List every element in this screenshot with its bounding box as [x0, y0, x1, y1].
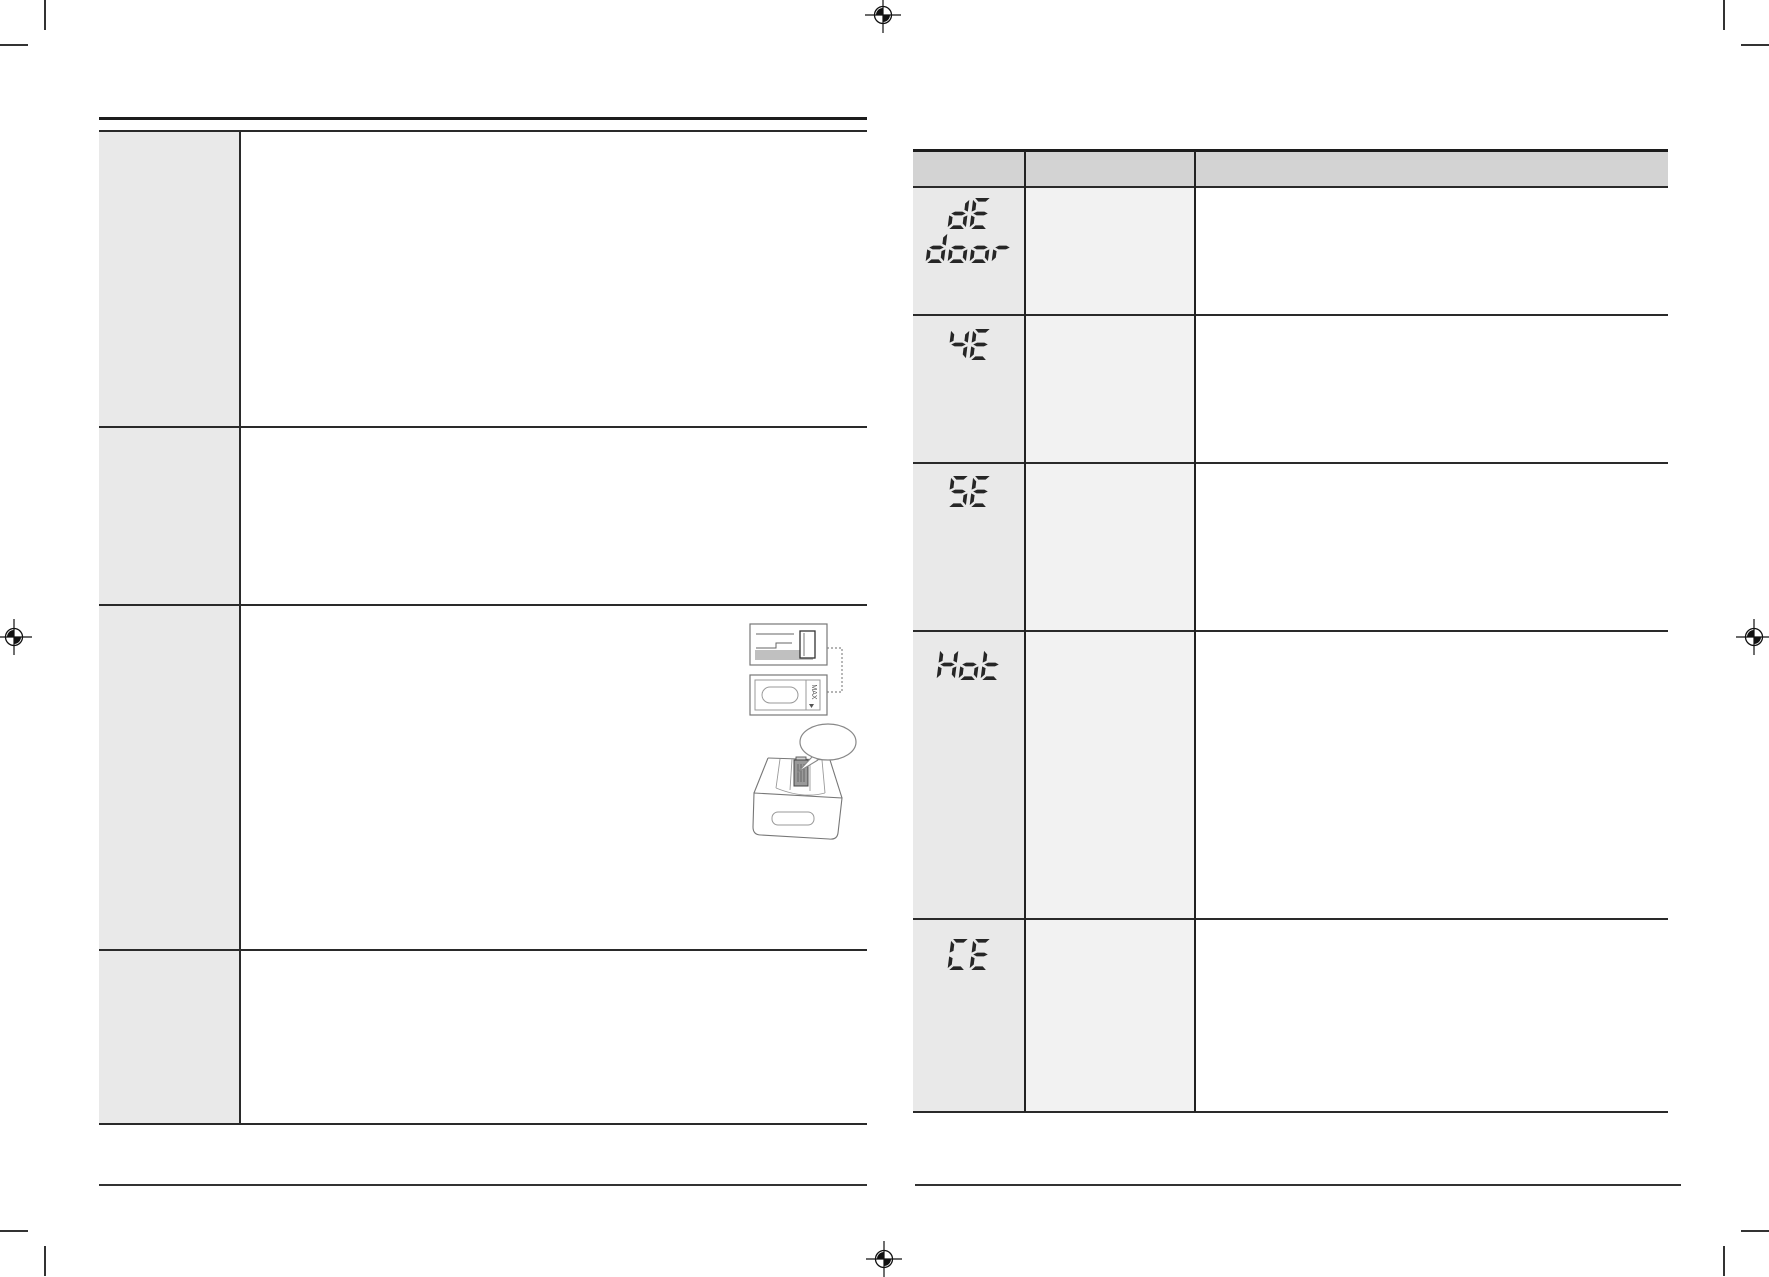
error-code-display: [913, 329, 1025, 360]
row-divider: [913, 314, 1668, 316]
registration-mark-icon: [0, 619, 32, 655]
seven-segment-char: [969, 232, 992, 263]
row-divider: [99, 949, 867, 951]
crop-mark: [1741, 44, 1769, 46]
seven-segment-char: [969, 198, 992, 229]
seven-segment-char: [947, 198, 970, 229]
row-divider: [913, 462, 1668, 464]
table-border: [99, 130, 867, 132]
crop-mark: [44, 0, 46, 30]
row-divider: [99, 604, 867, 606]
error-code-line: [949, 329, 990, 360]
crop-mark: [44, 1246, 46, 1276]
crop-mark: [1723, 0, 1725, 30]
table-row-label-cell: [99, 606, 239, 949]
error-code-line: [949, 939, 990, 970]
seven-segment-char: [969, 329, 992, 360]
registration-mark-icon: [866, 1241, 902, 1277]
row-divider: [99, 426, 867, 428]
error-code-line: [949, 476, 990, 507]
speech-bubble: [798, 724, 856, 772]
crop-mark: [1723, 1246, 1725, 1276]
cause-column-background: [1025, 187, 1195, 1112]
error-code-display: [913, 939, 1025, 970]
max-label: MAX: [810, 684, 817, 700]
row-divider: [913, 918, 1668, 920]
seven-segment-char: [947, 476, 970, 507]
crop-mark: [0, 1230, 28, 1232]
seven-segment-char: [947, 232, 970, 263]
column-divider: [1194, 151, 1196, 1112]
crop-mark: [1741, 1230, 1769, 1232]
error-code-display: [913, 476, 1025, 507]
table-header-row: [913, 151, 1668, 187]
drawer-sketch: [753, 757, 842, 839]
seven-segment-char: [936, 649, 959, 680]
error-code-display: [913, 198, 1025, 263]
error-code-line: [949, 198, 990, 229]
table-row-label-cell: [99, 428, 239, 604]
table-border: [913, 149, 1668, 152]
detergent-drawer-illustration: MAX: [748, 618, 860, 850]
page-bottom-rule: [915, 1184, 1681, 1186]
seven-segment-char: [958, 649, 981, 680]
crop-mark: [0, 44, 28, 46]
registration-mark-icon: [1736, 619, 1769, 655]
error-code-line: [927, 232, 1012, 263]
scanned-manual-spread: { "colors": { "header_gray": "#d3d3d3", …: [0, 0, 1769, 1276]
error-code-display: [913, 649, 1025, 680]
page-top-rule: [99, 117, 867, 120]
table-row-label-cell: [99, 132, 239, 426]
row-divider: [913, 630, 1668, 632]
table-border: [913, 1111, 1668, 1113]
seven-segment-char: [969, 939, 992, 970]
seven-segment-char: [980, 649, 1003, 680]
seven-segment-char: [991, 232, 1014, 263]
registration-mark-icon: [865, 0, 901, 33]
column-divider: [239, 130, 241, 1125]
seven-segment-char: [969, 476, 992, 507]
callout-dotted-line: [827, 648, 842, 692]
header-divider: [913, 186, 1668, 188]
seven-segment-char: [947, 939, 970, 970]
table-border: [99, 1123, 867, 1125]
seven-segment-char: [947, 329, 970, 360]
table-row-label-cell: [99, 951, 239, 1123]
compartment-side-view: [750, 624, 827, 665]
seven-segment-char: [925, 232, 948, 263]
compartment-top-view: MAX: [750, 675, 827, 715]
error-code-line: [938, 649, 1001, 680]
page-bottom-rule: [99, 1184, 867, 1186]
